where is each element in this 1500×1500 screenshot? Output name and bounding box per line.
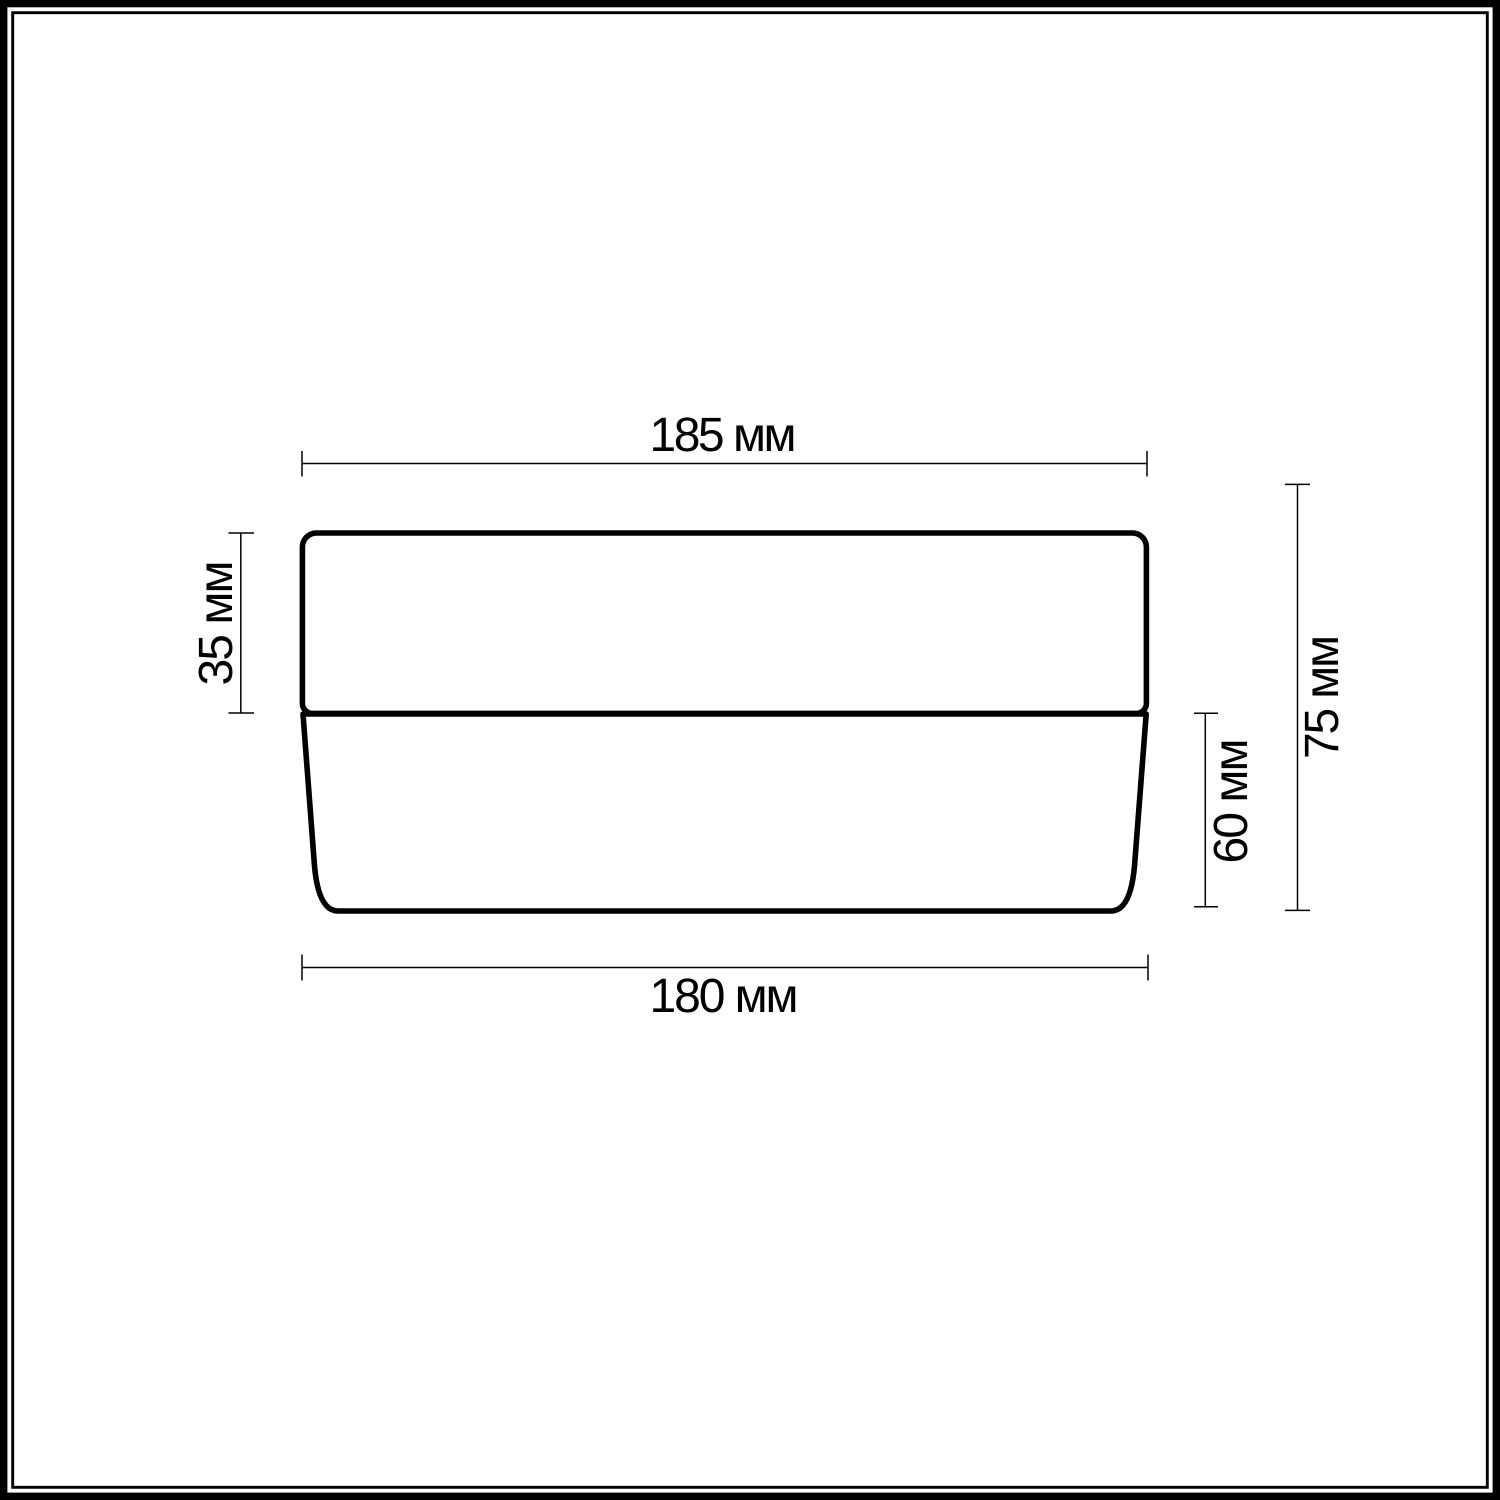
svg-text:35 мм: 35 мм (190, 561, 243, 686)
svg-text:180 мм: 180 мм (650, 970, 799, 1023)
svg-text:60 мм: 60 мм (1205, 739, 1258, 864)
svg-text:75 мм: 75 мм (1296, 635, 1349, 759)
svg-text:185 мм: 185 мм (650, 409, 797, 462)
